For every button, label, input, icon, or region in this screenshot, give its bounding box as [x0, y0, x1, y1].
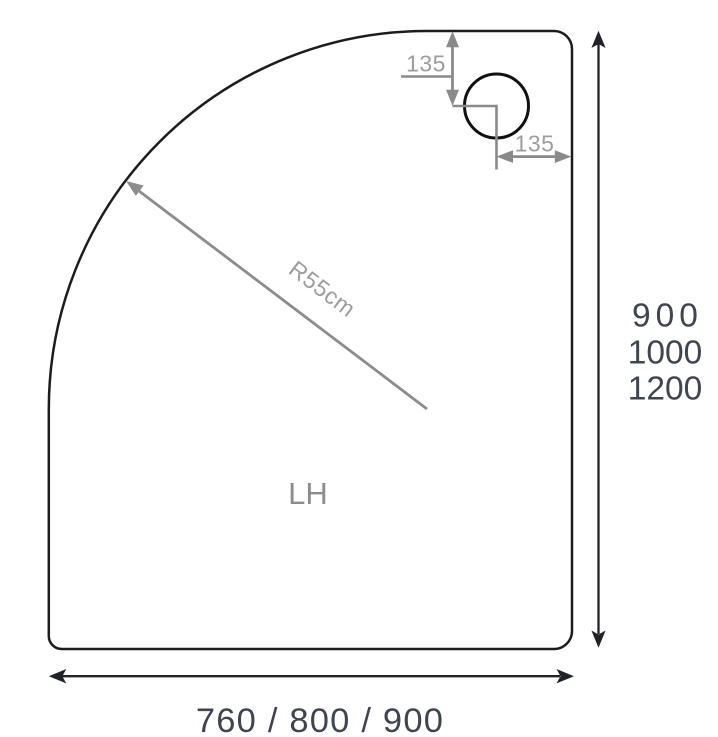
svg-text:760 / 800 / 900: 760 / 800 / 900 — [196, 702, 444, 737]
svg-text:135: 135 — [515, 131, 555, 157]
svg-text:900: 900 — [632, 298, 703, 335]
svg-text:135: 135 — [406, 51, 446, 77]
svg-text:1000: 1000 — [628, 335, 703, 372]
svg-text:1200: 1200 — [628, 371, 703, 408]
svg-text:LH: LH — [288, 476, 328, 511]
